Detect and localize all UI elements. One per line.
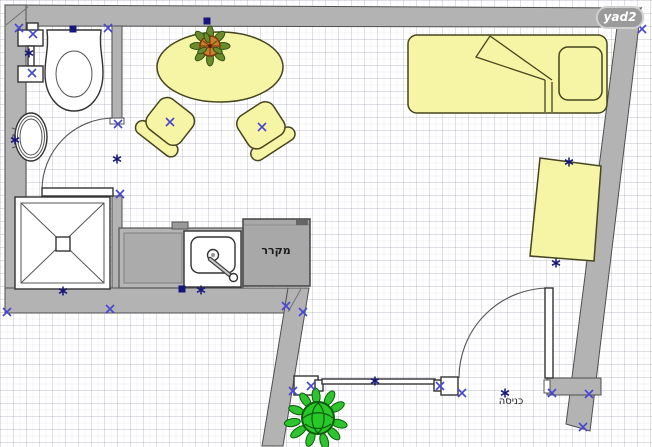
door-swing-icon <box>42 118 114 190</box>
toilet-icon <box>45 30 103 111</box>
selection-handle-icon <box>204 18 211 25</box>
potted-plant-icon <box>190 26 230 66</box>
selection-handle-icon <box>70 26 77 33</box>
selection-handle-icon <box>179 286 186 293</box>
counter-left-section <box>124 233 182 283</box>
floorplan-canvas: מקרר כניסה yad2 <box>0 0 652 447</box>
faucet-base <box>172 222 188 229</box>
floorplan-drawing <box>0 0 652 447</box>
yad2-logo: yad2 <box>596 6 644 29</box>
table-plant[interactable] <box>190 26 230 66</box>
bed[interactable] <box>408 35 607 113</box>
toilet[interactable] <box>45 30 103 111</box>
selection-asterisk-icon <box>113 155 121 164</box>
wall-entry-jamb[interactable] <box>547 378 601 395</box>
door-swing-icon <box>459 288 549 378</box>
desk[interactable] <box>530 158 601 261</box>
yad2-logo-text: yad2 <box>604 10 637 24</box>
door-leaf <box>545 288 553 378</box>
selection-x-icon <box>458 389 466 397</box>
floor-plant[interactable] <box>284 388 348 447</box>
shower[interactable] <box>15 197 110 289</box>
desk-icon <box>530 158 601 261</box>
refrigerator-label: מקרר <box>254 244 298 257</box>
door-leaf <box>42 188 113 196</box>
pillow-icon <box>559 47 602 100</box>
potted-plant-icon <box>284 388 348 447</box>
wall-top[interactable] <box>5 5 641 27</box>
wall-bottom[interactable] <box>5 288 300 313</box>
selection-asterisk-icon <box>552 259 560 268</box>
entrance-door[interactable] <box>459 288 553 378</box>
wall-divider-upper[interactable] <box>112 26 122 124</box>
shower-drain <box>56 237 70 251</box>
bathroom-door[interactable] <box>42 118 114 196</box>
refrigerator-handle <box>296 220 308 225</box>
kitchen-counter[interactable] <box>119 222 243 288</box>
entrance-label: כניסה <box>487 396 535 407</box>
